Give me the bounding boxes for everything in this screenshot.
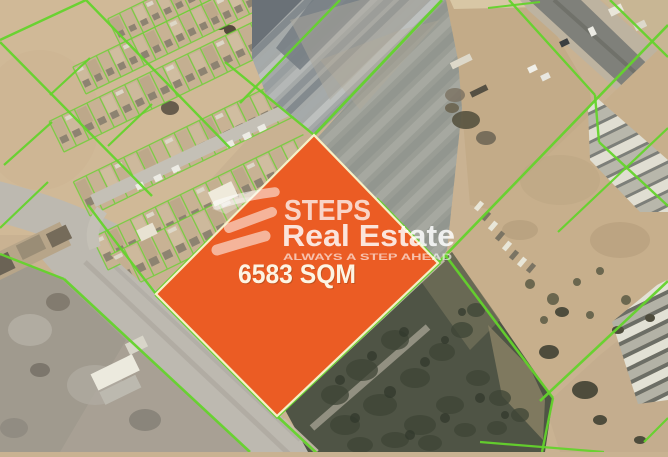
svg-text:6583 SQM: 6583 SQM [238,259,356,289]
svg-text:Real Estate: Real Estate [282,218,455,253]
